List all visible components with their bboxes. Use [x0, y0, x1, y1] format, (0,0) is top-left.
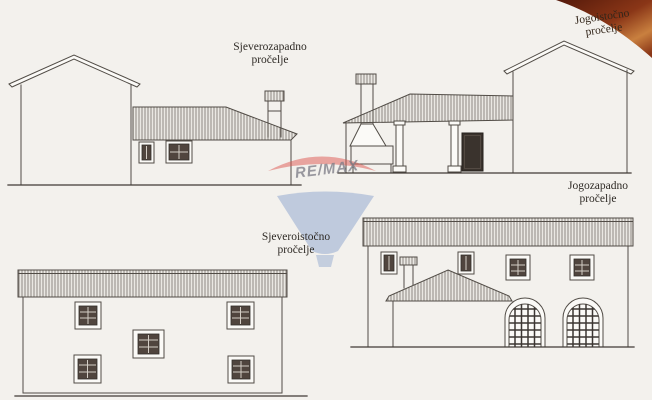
- elevation-northwest-drawing: [8, 55, 301, 185]
- label-line: pročelje: [550, 193, 646, 206]
- porch-column: [448, 121, 461, 172]
- window: [166, 141, 192, 163]
- door: [462, 133, 483, 171]
- house-walls: [21, 85, 131, 185]
- window: [74, 355, 101, 383]
- gable-roof: [504, 41, 634, 74]
- elevation-southwest-drawing: [351, 218, 634, 347]
- gable-roof: [9, 55, 140, 87]
- label-line: Sjeveroistočno: [246, 231, 346, 244]
- porch-column: [393, 121, 406, 172]
- elevation-northeast-drawing: [15, 270, 307, 396]
- label-southwest-elevation: Jogozapadno pročelje: [550, 180, 646, 205]
- window: [133, 330, 164, 358]
- scanned-elevation-plan-page: RE/MAX Sjeverozapadno pročelje Jogoistoč…: [0, 0, 652, 400]
- arched-door: [505, 298, 545, 347]
- wing-roof: [133, 107, 297, 185]
- roof-band: [18, 270, 287, 297]
- window: [228, 356, 254, 383]
- window: [227, 302, 254, 329]
- label-northeast-elevation: Sjeveroistočno pročelje: [246, 231, 346, 256]
- porch-roof: [386, 270, 512, 347]
- window: [570, 255, 594, 280]
- window: [381, 252, 397, 274]
- label-northwest-elevation: Sjeverozapadno pročelje: [220, 41, 320, 66]
- window: [506, 255, 530, 280]
- window: [458, 252, 474, 274]
- label-line: pročelje: [220, 54, 320, 67]
- label-line: pročelje: [246, 244, 346, 257]
- roof-band: [363, 218, 633, 246]
- chimney: [400, 257, 417, 288]
- label-line: Sjeverozapadno: [220, 41, 320, 54]
- label-line: Jogozapadno: [550, 180, 646, 193]
- window: [139, 142, 154, 163]
- house-walls: [513, 70, 627, 173]
- arched-door: [563, 298, 603, 347]
- window: [75, 302, 101, 329]
- balloon-basket: [316, 255, 334, 267]
- elevation-southeast-drawing: [338, 41, 634, 173]
